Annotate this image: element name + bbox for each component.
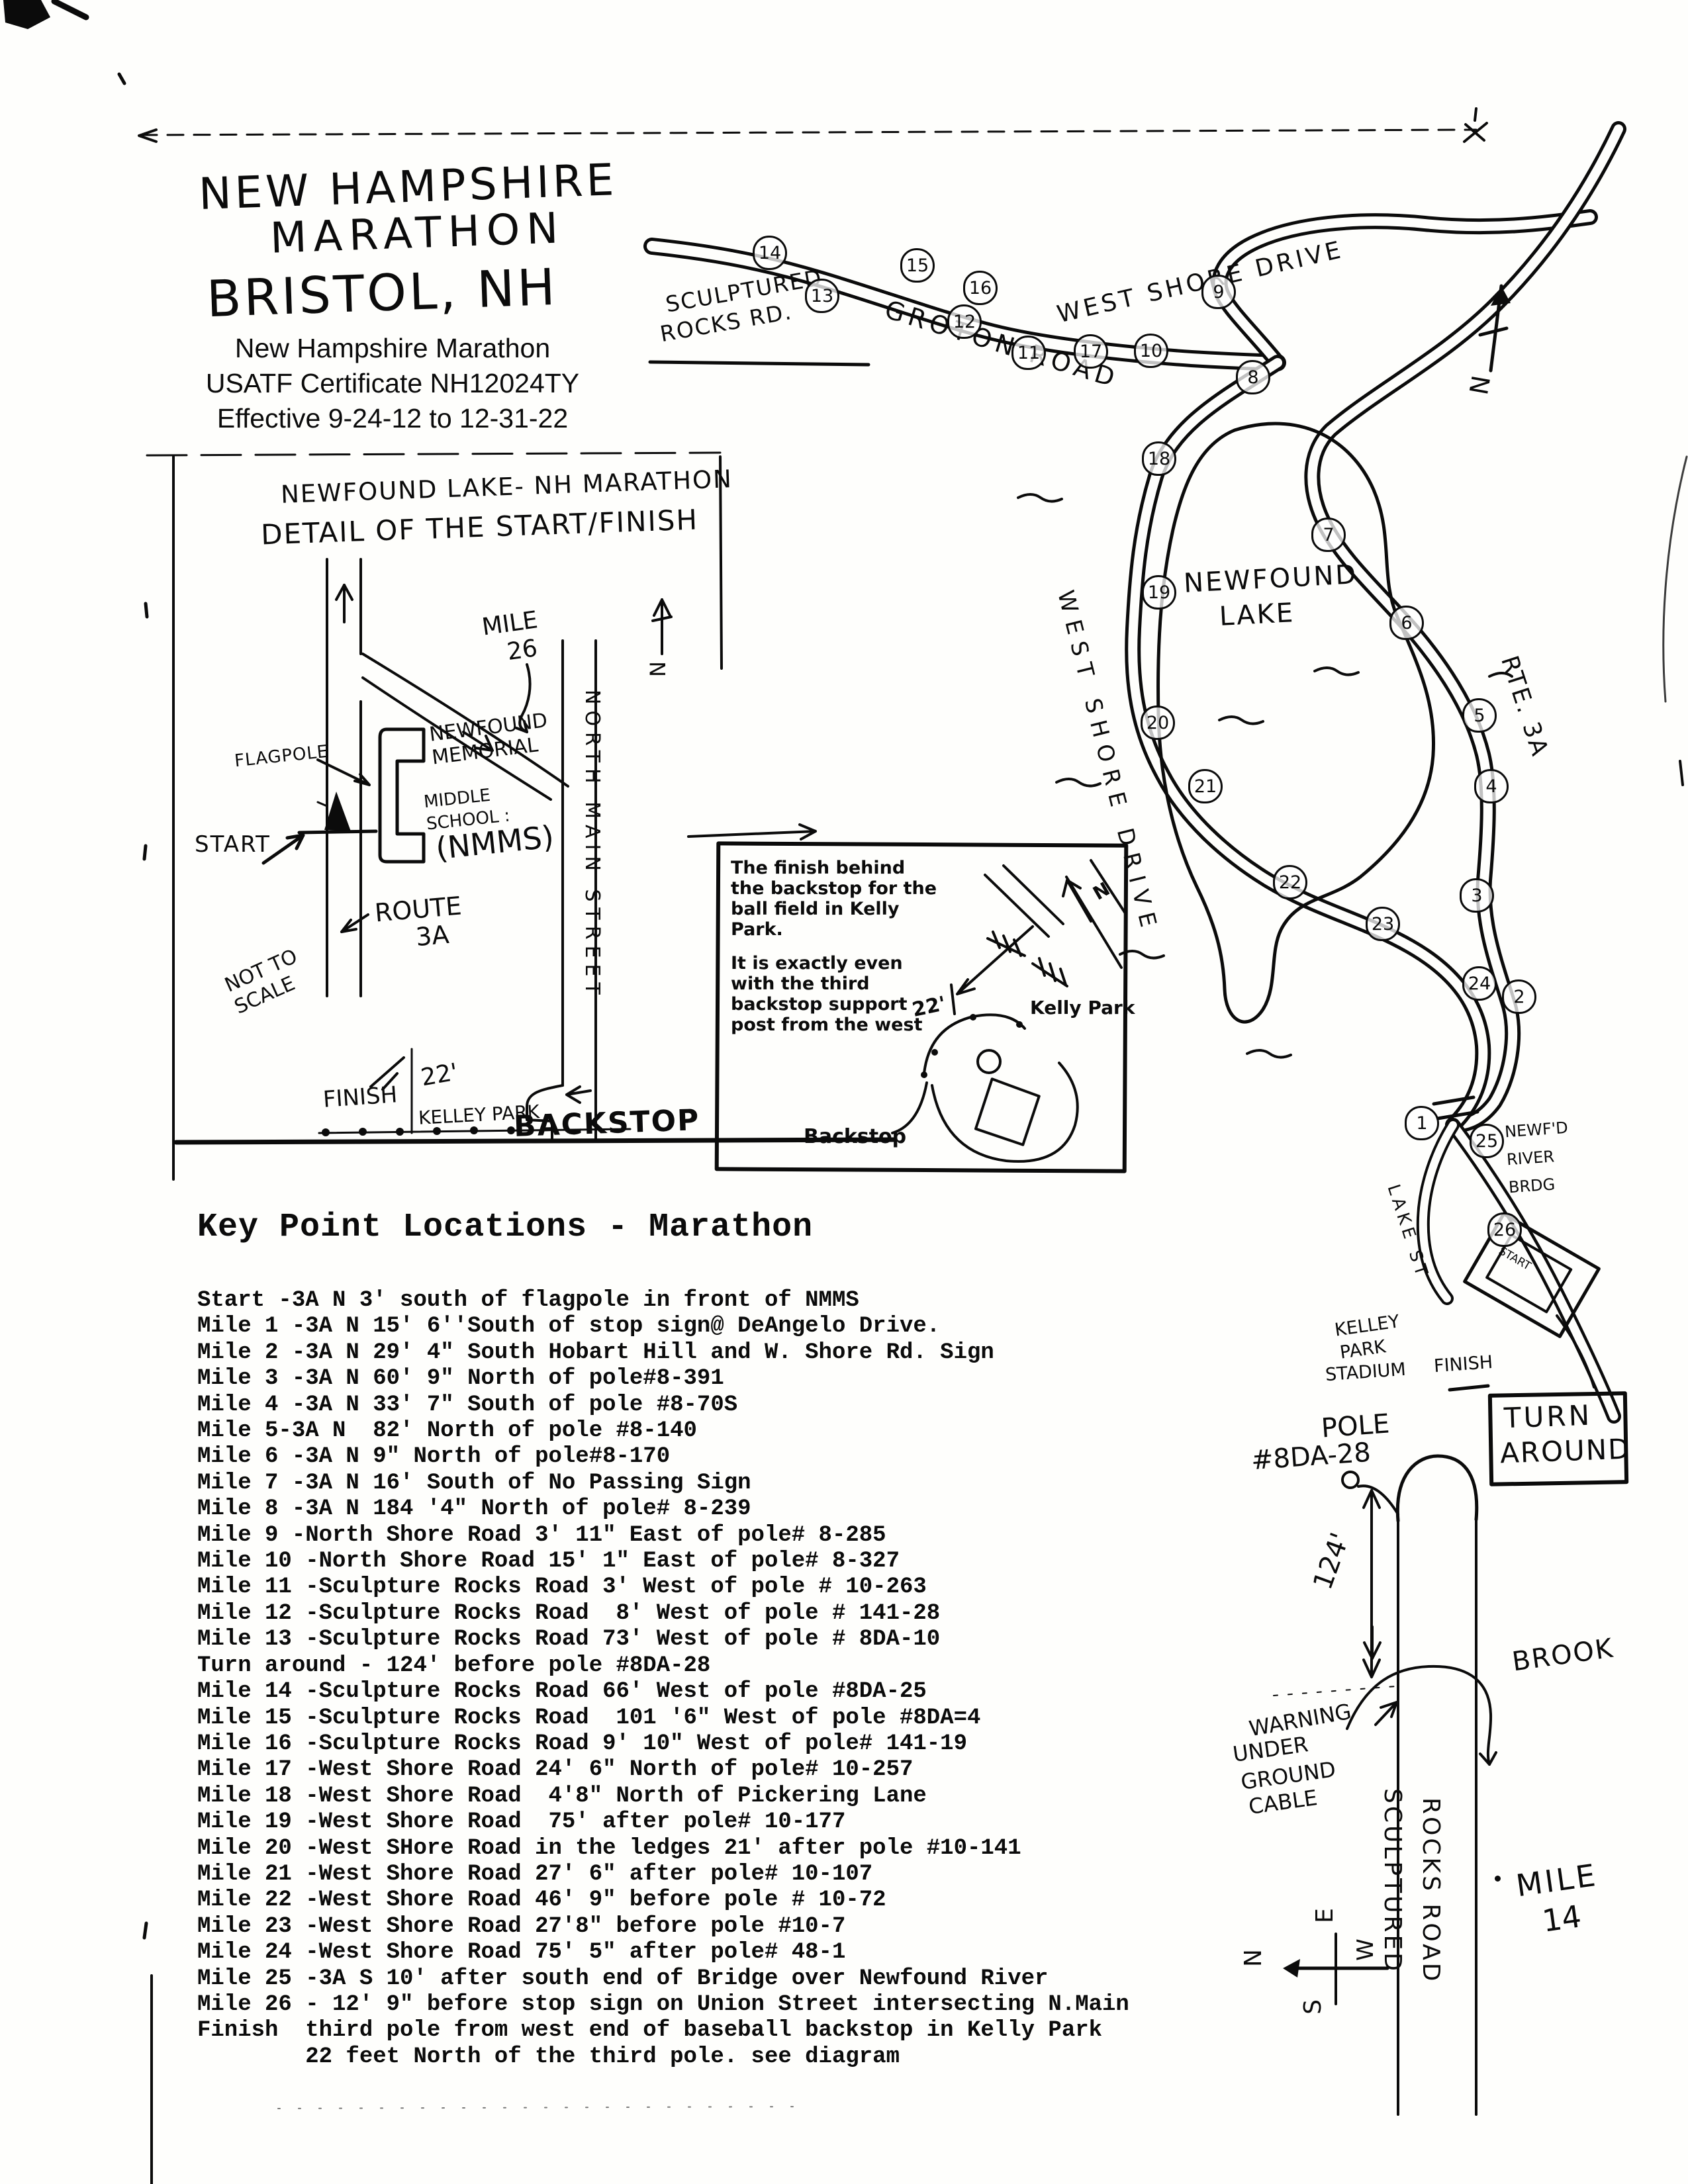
key-point-line: Mile 12 -Sculpture Rocks Road 8' West of…: [197, 1601, 1129, 1627]
key-points-list: Start -3A N 3' south of flagpole in fron…: [197, 1288, 1129, 2070]
key-point-line: Mile 8 -3A N 184 '4" North of pole# 8-23…: [197, 1496, 1129, 1522]
mile-marker-20: 20: [1141, 705, 1175, 740]
key-point-line: Mile 20 -West SHore Road in the ledges 2…: [197, 1836, 1129, 1862]
mile-marker-12: 12: [947, 304, 982, 339]
mile-marker-17: 17: [1074, 334, 1108, 369]
sculptured-rocks-road-vertical2: ROCKS ROAD: [1417, 1797, 1444, 1983]
mile-marker-8: 8: [1236, 360, 1270, 394]
scan-blob: [3, 0, 50, 29]
key-point-line: Mile 6 -3A N 9" North of pole#8-170: [197, 1444, 1129, 1470]
mile-marker-14: 14: [753, 236, 787, 270]
mile14-number: 14: [1540, 1898, 1583, 1939]
key-point-line: Mile 14 -Sculpture Rocks Road 66' West o…: [197, 1679, 1129, 1705]
inset-kelly-park-label: Kelly Park: [1030, 997, 1135, 1019]
detail-finish-label: FINISH: [322, 1081, 399, 1113]
mile-marker-24: 24: [1462, 966, 1497, 1001]
mile-marker-10: 10: [1134, 334, 1168, 368]
mile-marker-21: 21: [1188, 769, 1223, 803]
mile-marker-5: 5: [1462, 698, 1497, 733]
key-point-line: 22 feet North of the third pole. see dia…: [197, 2044, 1129, 2070]
key-point-line: Mile 2 -3A N 29' 4" South Hobart Hill an…: [197, 1340, 1129, 1366]
mile-marker-7: 7: [1311, 518, 1346, 552]
key-point-line: Start -3A N 3' south of flagpole in fron…: [197, 1288, 1129, 1314]
detail-north-label: N: [645, 661, 671, 677]
compass-south: S: [1299, 1999, 1327, 2015]
mile-marker-25: 25: [1470, 1124, 1504, 1158]
mile-marker-6: 6: [1389, 606, 1424, 640]
sculptured-rocks-road-vertical1: SCULPTURED: [1379, 1788, 1406, 1974]
mile-marker-15: 15: [900, 248, 935, 283]
key-point-line: Mile 23 -West Shore Road 27'8" before po…: [197, 1914, 1129, 1940]
key-point-line: Mile 13 -Sculpture Rocks Road 73' West o…: [197, 1627, 1129, 1653]
north-main-street-label: NORTH MAIN STREET: [581, 690, 604, 1001]
start-label: START: [195, 831, 271, 858]
mile-marker-11: 11: [1011, 336, 1046, 370]
key-points-heading: Key Point Locations - Marathon: [197, 1208, 813, 1246]
key-point-line: Mile 4 -3A N 33' 7" South of pole #8-70S: [197, 1392, 1129, 1418]
mile-marker-22: 22: [1273, 865, 1307, 899]
key-point-line: Turn around - 124' before pole #8DA-28: [197, 1653, 1129, 1679]
certificate-line2: USATF Certificate NH12024TY: [194, 366, 591, 401]
detail-mile26-number: 26: [505, 635, 539, 666]
mile-marker-16: 16: [963, 271, 998, 305]
backstop-label: BACKSTOP: [513, 1103, 700, 1144]
key-point-line: Mile 16 -Sculpture Rocks Road 9' 10" Wes…: [197, 1731, 1129, 1757]
key-point-line: Mile 11 -Sculpture Rocks Road 3' West of…: [197, 1574, 1129, 1600]
inset-backstop-label: Backstop: [804, 1125, 906, 1148]
key-point-line: Mile 25 -3A S 10' after south end of Bri…: [197, 1966, 1129, 1992]
key-point-line: Mile 17 -West Shore Road 24' 6" North of…: [197, 1757, 1129, 1783]
turn-around-label2: AROUND: [1499, 1433, 1631, 1470]
certificate-line3: Effective 9-24-12 to 12-31-22: [194, 401, 591, 436]
key-point-line: Mile 19 -West Shore Road 75' after pole#…: [197, 1809, 1129, 1835]
mile-marker-1: 1: [1405, 1106, 1439, 1140]
key-point-line: Mile 15 -Sculpture Rocks Road 101 '6" We…: [197, 1706, 1129, 1731]
scanned-marathon-map-page: NEW HAMPSHIRE MARATHON BRISTOL, NH New H…: [0, 0, 1688, 2184]
key-point-line: Mile 1 -3A N 15' 6''South of stop sign@ …: [197, 1314, 1129, 1340]
newfound-lake-label2: LAKE: [1219, 598, 1295, 632]
handwritten-title-line2: MARATHON: [269, 204, 565, 263]
mile-marker-3: 3: [1460, 878, 1494, 913]
handwritten-title-line3: BRISTOL, NH: [206, 257, 559, 328]
key-point-line: Mile 7 -3A N 16' South of No Passing Sig…: [197, 1471, 1129, 1496]
compass-west: W: [1352, 1938, 1379, 1961]
certificate-line1: New Hampshire Marathon: [194, 331, 591, 366]
mile14-dot: [1495, 1876, 1501, 1882]
compass-north: N: [1240, 1949, 1267, 1967]
mile-marker-9: 9: [1201, 275, 1236, 309]
mile-marker-18: 18: [1142, 441, 1176, 476]
inset-paragraph1: The finish behind the backstop for the b…: [731, 858, 937, 940]
mile-marker-13: 13: [805, 279, 839, 313]
key-point-line: Finish third pole from west end of baseb…: [197, 2018, 1129, 2044]
key-point-line: Mile 22 -West Shore Road 46' 9" before p…: [197, 1888, 1129, 1913]
key-point-line: Mile 26 - 12' 9" before stop sign on Uni…: [197, 1992, 1129, 2018]
mile-marker-2: 2: [1502, 979, 1536, 1014]
mile-marker-26: 26: [1487, 1212, 1522, 1247]
kelley-stadium-finish-label: FINISH: [1433, 1352, 1493, 1377]
key-point-line: Mile 10 -North Shore Road 15' 1" East of…: [197, 1549, 1129, 1574]
inset-paragraph2: It is exactly even with the third backst…: [731, 953, 922, 1035]
newfound-river-bridge-label: NEWF'D RIVER BRDG: [1504, 1114, 1573, 1201]
mile-marker-4: 4: [1474, 769, 1509, 803]
key-point-line: Mile 9 -North Shore Road 3' 11" East of …: [197, 1523, 1129, 1549]
key-point-line: Mile 3 -3A N 60' 9" North of pole#8-391: [197, 1366, 1129, 1392]
certificate-block: New Hampshire Marathon USATF Certificate…: [194, 331, 591, 436]
turn-around-label1: TURN: [1503, 1399, 1593, 1435]
key-point-line: Mile 5-3A N 82' North of pole #8-140: [197, 1418, 1129, 1444]
compass-east: E: [1311, 1908, 1338, 1923]
key-point-line: Mile 21 -West Shore Road 27' 6" after po…: [197, 1862, 1129, 1888]
mile-marker-23: 23: [1366, 907, 1400, 941]
key-point-line: Mile 24 -West Shore Road 75' 5" after po…: [197, 1940, 1129, 1966]
key-point-line: Mile 18 -West Shore Road 4'8" North of P…: [197, 1784, 1129, 1809]
mile-marker-19: 19: [1142, 575, 1176, 610]
route-3a-number: 3A: [414, 920, 450, 952]
